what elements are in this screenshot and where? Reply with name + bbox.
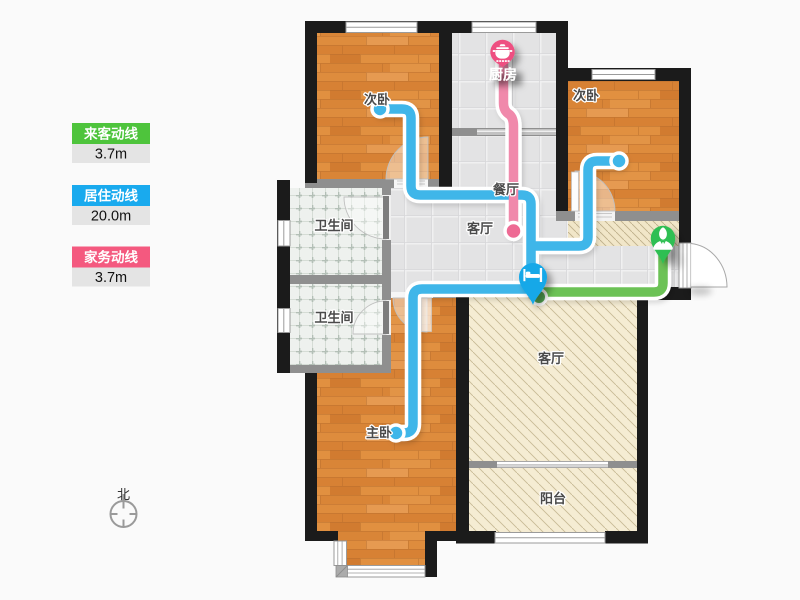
svg-text:客厅: 客厅 xyxy=(538,351,564,366)
svg-text:3.7m: 3.7m xyxy=(95,270,127,286)
svg-text:家务动线: 家务动线 xyxy=(84,249,138,265)
svg-text:20.0m: 20.0m xyxy=(91,209,131,225)
svg-text:3.7m: 3.7m xyxy=(95,147,127,163)
svg-text:厨房: 厨房 xyxy=(489,67,517,83)
svg-text:餐厅: 餐厅 xyxy=(492,182,519,197)
svg-text:卫生间: 卫生间 xyxy=(314,218,353,233)
svg-text:卫生间: 卫生间 xyxy=(314,310,353,325)
svg-text:阳台: 阳台 xyxy=(540,491,566,506)
svg-text:客厅: 客厅 xyxy=(467,221,493,236)
svg-text:北: 北 xyxy=(117,487,130,502)
svg-text:次卧: 次卧 xyxy=(573,88,599,103)
svg-text:次卧: 次卧 xyxy=(364,92,390,107)
svg-text:主卧: 主卧 xyxy=(366,425,392,440)
svg-text:居住动线: 居住动线 xyxy=(84,188,138,204)
svg-text:来客动线: 来客动线 xyxy=(83,126,138,142)
